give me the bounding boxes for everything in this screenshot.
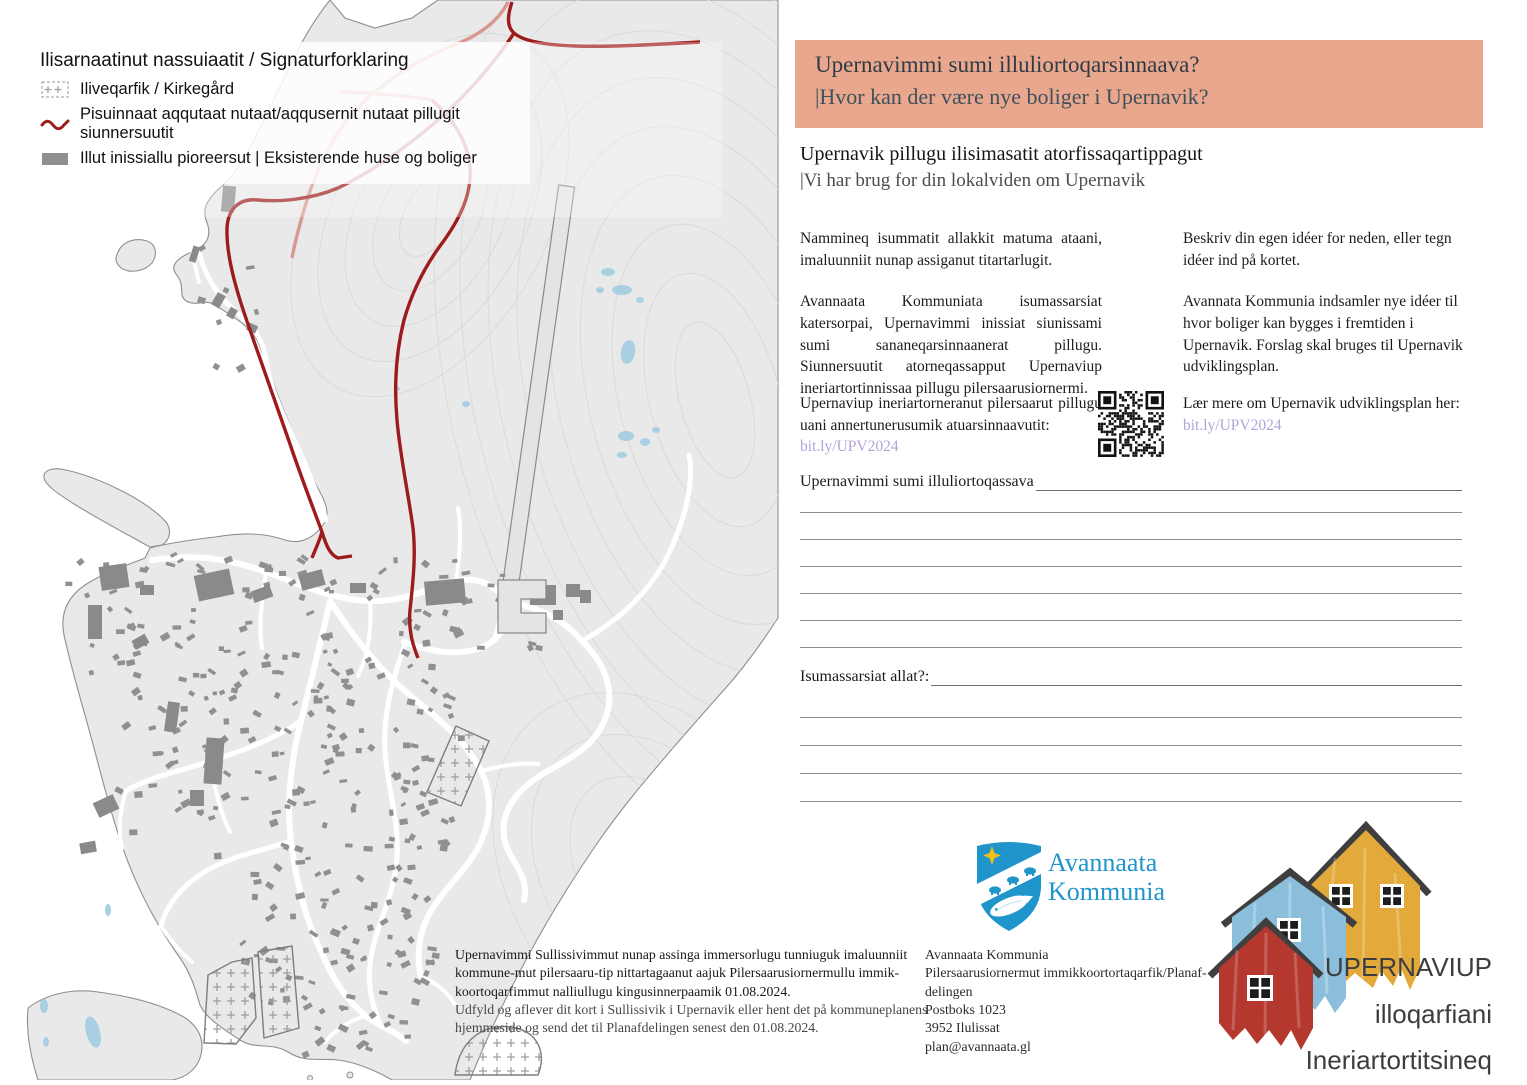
- project-logo-line2: illoqarfiani: [1278, 999, 1492, 1030]
- answer-lines-q2[interactable]: [800, 690, 1462, 802]
- qr-caption: Upernaviup ineriartorneranut pilersaarut…: [800, 395, 1102, 434]
- proposed-path-line-icon: [40, 118, 70, 130]
- paragraph: Beskriv din egen idéer for neden, eller …: [1183, 228, 1479, 271]
- plan-link-da[interactable]: bit.ly/UPV2024: [1183, 417, 1282, 434]
- legend-item-proposed-path: Pisuinnaat aqqutaat nutaat/aqqusernit nu…: [40, 105, 518, 143]
- answer-line[interactable]: [800, 513, 1462, 540]
- answer-line[interactable]: [800, 746, 1462, 774]
- intro-title-kl: Upernavik pillugu ilisimasatit atorfissa…: [800, 143, 1480, 166]
- legend-item-label: Pisuinnaat aqqutaat nutaat/aqqusernit nu…: [80, 105, 518, 143]
- answer-line[interactable]: [931, 666, 1462, 686]
- map-legend: Ilisarnaatinut nassuiaatit / Signaturfor…: [28, 42, 530, 184]
- paragraph: Avannaata Kommuniata isumassarsiat kater…: [800, 291, 1102, 399]
- qr-text-kl: Upernaviup ineriartorneranut pilersaarut…: [800, 393, 1102, 458]
- legend-item-label: Illut inissiallu pioreersut | Eksisteren…: [80, 149, 477, 168]
- answer-line[interactable]: [800, 621, 1462, 648]
- project-logo-line1: UPERNAVIUP: [1278, 952, 1492, 983]
- intro-section: Upernavik pillugu ilisimasatit atorfissa…: [800, 143, 1480, 192]
- question-2-label: Isumassarsiat allat?:: [800, 668, 929, 686]
- qr-text-da: Lær mere om Upernavik udviklingsplan her…: [1183, 393, 1489, 436]
- houses-logo: [1205, 818, 1525, 1080]
- address-line: Postboks 1023: [925, 1001, 1220, 1019]
- legend-item-cemetery: Iliveqarfik / Kirkegård: [40, 80, 518, 99]
- existing-buildings-swatch-icon: [40, 152, 70, 166]
- answer-line[interactable]: [800, 486, 1462, 513]
- address-line: 3952 Ilulissat: [925, 1019, 1220, 1037]
- instructions-da: Udfyld og aflever dit kort i Sullissivik…: [455, 1001, 929, 1038]
- paragraph: Avannata Kommunia indsamler nye idéer ti…: [1183, 291, 1479, 378]
- address-line: Avannaata Kommunia: [925, 946, 1220, 964]
- body-column-kl: Nammineq isummatit allakkit matuma ataan…: [800, 228, 1102, 420]
- legend-title: Ilisarnaatinut nassuiaatit / Signaturfor…: [40, 50, 518, 72]
- plan-link-kl[interactable]: bit.ly/UPV2024: [800, 438, 899, 455]
- question-2: Isumassarsiat allat?:: [800, 666, 1462, 686]
- instructions-kl: Upernavimmi Sullissivimmut nunap assinga…: [455, 946, 929, 1001]
- answer-line[interactable]: [800, 540, 1462, 567]
- submission-instructions: Upernavimmi Sullissivimmut nunap assinga…: [455, 946, 929, 1038]
- answer-line[interactable]: [800, 690, 1462, 718]
- page-title-da: |Hvor kan der være nye boliger i Upernav…: [815, 84, 1463, 110]
- answer-line[interactable]: [800, 567, 1462, 594]
- contact-address: Avannaata Kommunia Pilersaarusiornermut …: [925, 946, 1220, 1056]
- header-banner: Upernavimmi sumi illuliortoqarsinnaava? …: [795, 40, 1483, 128]
- answer-lines-q1[interactable]: [800, 486, 1462, 648]
- avannaata-crest: [973, 838, 1045, 934]
- answer-line[interactable]: [800, 774, 1462, 802]
- intro-title-da: |Vi har brug for din lokalviden om Upern…: [800, 170, 1480, 192]
- qr-code: [1098, 391, 1164, 457]
- town-map: Ilisarnaatinut nassuiaatit / Signaturfor…: [0, 0, 790, 1080]
- project-logo-line3: Ineriartortitsineq: [1278, 1045, 1492, 1076]
- cemetery-swatch-icon: [40, 81, 70, 98]
- paragraph: Nammineq isummatit allakkit matuma ataan…: [800, 228, 1102, 271]
- email-address[interactable]: plan@avannaata.gl: [925, 1038, 1220, 1056]
- window-icon: [1380, 884, 1404, 908]
- answer-line[interactable]: [800, 594, 1462, 621]
- body-column-da: Beskriv din egen idéer for neden, eller …: [1183, 228, 1479, 398]
- window-icon: [1247, 975, 1273, 1001]
- address-line: Pilersaarusiornermut immikkoortortaqarfi…: [925, 964, 1220, 982]
- legend-item-existing-buildings: Illut inissiallu pioreersut | Eksisteren…: [40, 149, 518, 168]
- legend-item-label: Iliveqarfik / Kirkegård: [80, 80, 234, 99]
- answer-line[interactable]: [800, 718, 1462, 746]
- page-title-kl: Upernavimmi sumi illuliortoqarsinnaava?: [815, 52, 1463, 78]
- qr-caption: Lær mere om Upernavik udviklingsplan her…: [1183, 395, 1460, 412]
- address-line: delingen: [925, 983, 1220, 1001]
